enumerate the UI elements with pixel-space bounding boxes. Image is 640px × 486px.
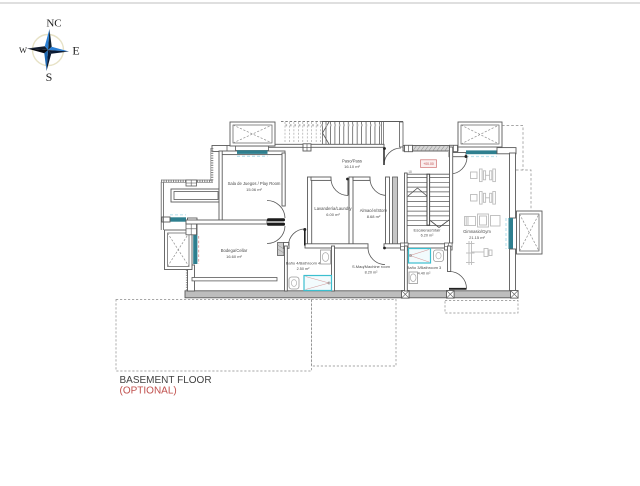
svg-text:Bodega/Cellar: Bodega/Cellar [221, 248, 248, 253]
svg-text:Sala de Juegos / Play Room: Sala de Juegos / Play Room [228, 181, 281, 186]
svg-text:W: W [19, 45, 27, 55]
svg-text:18: 18 [408, 170, 412, 174]
svg-text:Baño 4/Bathroom 4: Baño 4/Bathroom 4 [286, 261, 321, 266]
svg-text:+00.00: +00.00 [423, 162, 434, 166]
svg-text:(OPTIONAL): (OPTIONAL) [120, 386, 177, 397]
svg-text:S.Maq/Machine room: S.Maq/Machine room [352, 264, 391, 269]
svg-text:8.20 m²: 8.20 m² [365, 271, 379, 275]
svg-text:16.60 m²: 16.60 m² [226, 254, 242, 259]
svg-text:Lavandería/Laundry: Lavandería/Laundry [314, 206, 352, 211]
svg-text:Escaleras/Stair: Escaleras/Stair [414, 228, 442, 233]
svg-text:16.10 m²: 16.10 m² [344, 164, 360, 169]
svg-text:6.20 m²: 6.20 m² [421, 234, 435, 238]
svg-text:15.06 m²: 15.06 m² [246, 187, 262, 192]
svg-text:Gimnasio/Gym: Gimnasio/Gym [463, 229, 491, 234]
svg-text:E: E [72, 44, 79, 58]
svg-text:4.40 m²: 4.40 m² [418, 272, 432, 276]
svg-text:21.15 m²: 21.15 m² [469, 235, 485, 240]
svg-text:BASEMENT FLOOR: BASEMENT FLOOR [120, 375, 212, 386]
svg-text:6.00 m²: 6.00 m² [326, 212, 340, 217]
svg-text:Almacén/Store: Almacén/Store [360, 208, 388, 213]
svg-text:Paso/Pass: Paso/Pass [342, 159, 362, 164]
svg-text:NC: NC [46, 18, 61, 30]
svg-text:8.68 m²: 8.68 m² [367, 214, 381, 219]
svg-text:2.50 m²: 2.50 m² [297, 267, 311, 271]
svg-text:Baño 3/Bathroom 3: Baño 3/Bathroom 3 [407, 265, 442, 270]
svg-text:S: S [46, 70, 53, 84]
